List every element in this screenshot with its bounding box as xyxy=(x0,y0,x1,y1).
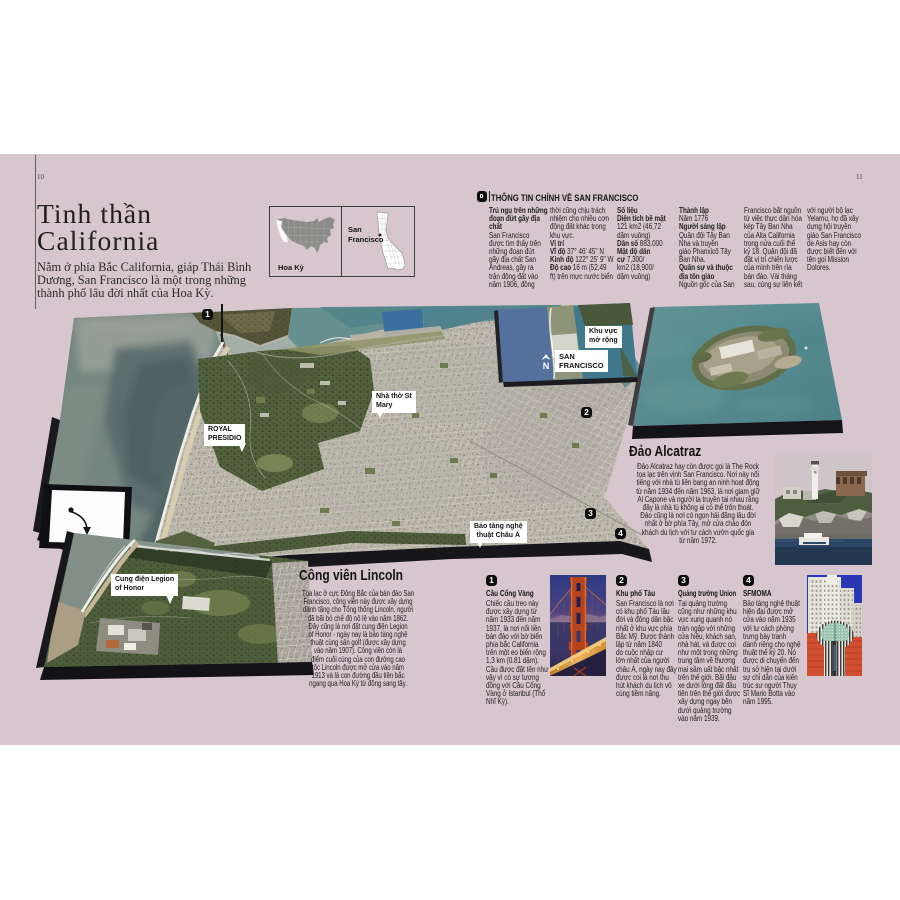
svg-text:N: N xyxy=(543,361,550,371)
